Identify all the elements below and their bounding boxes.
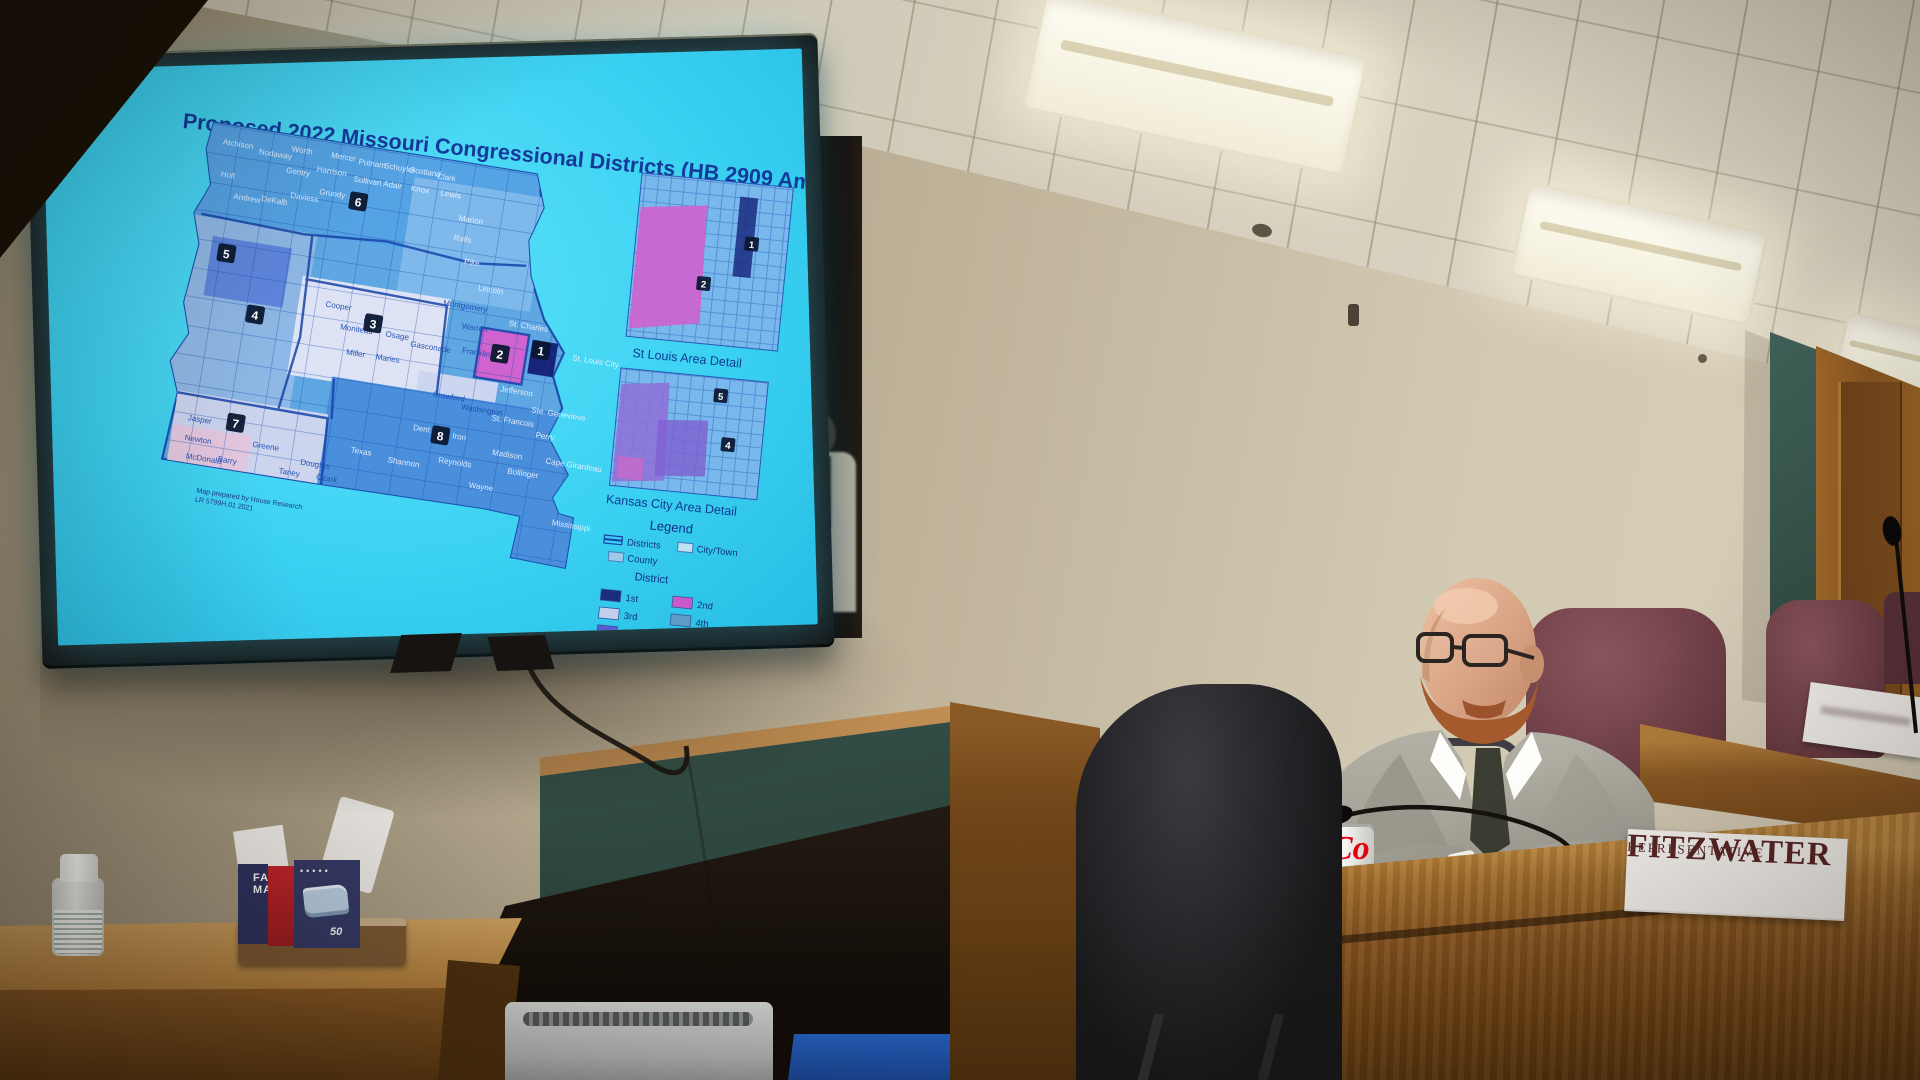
presentation-screen: Proposed 2022 Missouri Congressional Dis… bbox=[42, 49, 818, 646]
inset-maps: St Louis Area Detail Kansas City Area De… bbox=[605, 173, 793, 522]
face-mask-box: FACEMASK ••••• 50 bbox=[232, 820, 388, 946]
tv-stand-leg bbox=[390, 633, 462, 673]
standing-microphone bbox=[1870, 515, 1920, 745]
credenza-front bbox=[0, 984, 500, 1080]
office-chair bbox=[1076, 684, 1342, 1080]
district-map-slide: Proposed 2022 Missouri Congressional Dis… bbox=[42, 49, 818, 646]
svg-text:District: District bbox=[634, 571, 669, 586]
tv-cable bbox=[470, 610, 810, 1030]
blue-recycle-bin bbox=[788, 1034, 958, 1080]
bald-crown-highlight bbox=[1434, 588, 1498, 624]
inset-label-stl: St Louis Area Detail bbox=[632, 346, 743, 371]
spray-can-cap bbox=[60, 854, 98, 882]
wall-sensor bbox=[1348, 304, 1359, 326]
spray-can-label bbox=[54, 910, 102, 954]
wall-mounted-tv: Proposed 2022 Missouri Congressional Dis… bbox=[26, 33, 835, 669]
svg-text:County: County bbox=[627, 553, 658, 567]
svg-text:Districts: Districts bbox=[626, 537, 661, 551]
ear bbox=[1520, 645, 1544, 683]
svg-text:City/Town: City/Town bbox=[696, 544, 738, 559]
nameplate-name: Fitzwater bbox=[1626, 829, 1832, 873]
missouri-map: AtchisonNodawayWorthGentryHarrisonMercer… bbox=[139, 113, 648, 579]
legend-district-label: 1st bbox=[625, 593, 639, 605]
legend-swatch bbox=[600, 589, 621, 602]
mask-count: 50 bbox=[330, 926, 342, 938]
mask-box-label: FACEMASK bbox=[238, 864, 268, 944]
county-label: St. Louis City bbox=[572, 353, 620, 369]
mask-box-red-stripe bbox=[268, 866, 294, 946]
fitzwater-nameplate: Representative Fitzwater bbox=[1624, 829, 1847, 921]
svg-text:Legend: Legend bbox=[649, 517, 694, 536]
mask-illustration bbox=[303, 884, 350, 918]
mask-box-art: ••••• 50 bbox=[294, 860, 360, 948]
legend-swatch bbox=[672, 596, 693, 609]
map-footnote: Map prepared by House Research LR 5799H.… bbox=[194, 488, 302, 521]
sprinkler-head bbox=[1698, 354, 1707, 363]
svg-text:2: 2 bbox=[700, 279, 706, 290]
hearing-room-photo: FACEMASK ••••• 50 bbox=[0, 0, 1920, 1080]
